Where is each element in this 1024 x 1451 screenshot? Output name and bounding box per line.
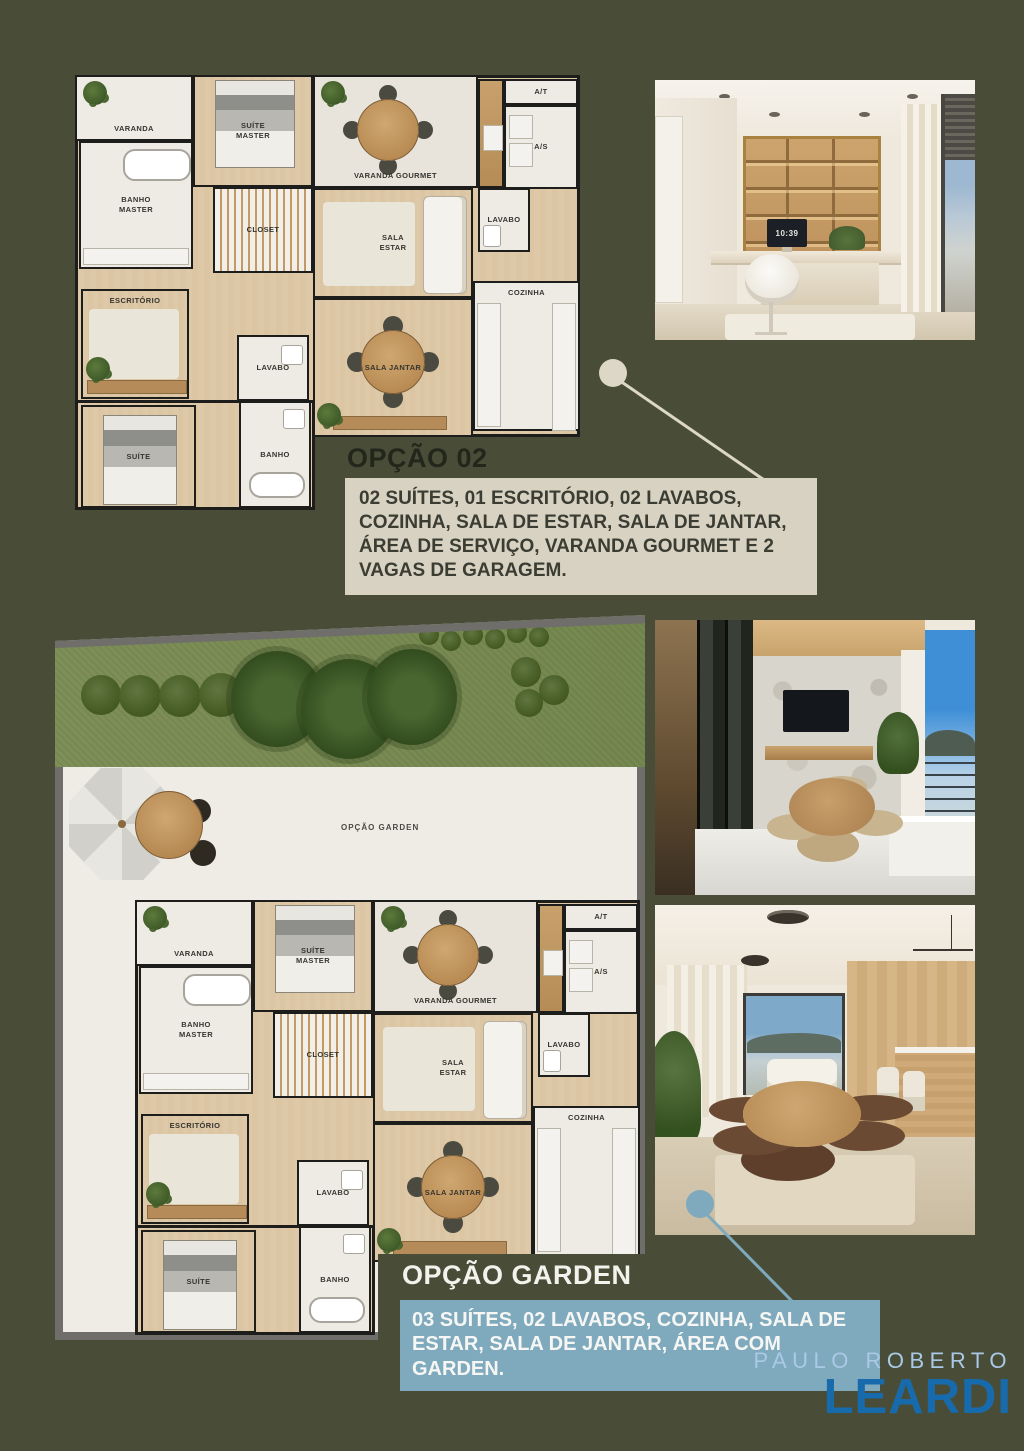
balcony-table [789, 778, 875, 836]
garden-label-sala_jantar: SALA JANTAR [425, 1188, 481, 1198]
patio-table [135, 791, 203, 859]
leardi-logo: PAULO ROBERTO LEARDI [753, 1348, 1012, 1421]
plant [143, 906, 167, 930]
garden-label-escritorio: ESCRITÓRIO [170, 1121, 221, 1131]
dining-photo [655, 905, 975, 1235]
desk-plant [829, 226, 865, 250]
kitchen-counter [612, 1128, 636, 1256]
washer [509, 115, 533, 139]
bush-icon [81, 675, 121, 715]
flower-bush-icon [441, 631, 461, 651]
plan1-label-lavabo_mid: LAVABO [257, 363, 290, 373]
plan1-label-suite_master: SUÍTE MASTER [231, 121, 275, 141]
garden-sala-jantar: SALA JANTAR [373, 1123, 533, 1262]
bathtub [123, 149, 191, 181]
dining-table [417, 924, 479, 986]
plan1-label-banho_master: BANHO MASTER [113, 195, 159, 215]
balcony-plant [877, 712, 919, 774]
bush-icon [539, 675, 569, 705]
flower-bush-icon [485, 629, 505, 649]
dryer [569, 968, 593, 992]
callout-line-option02 [620, 380, 771, 485]
garden-label-banho: BANHO [320, 1275, 350, 1285]
plan1-label-suite: SUÍTE [126, 452, 150, 462]
sideboard [333, 416, 447, 430]
sink [283, 409, 305, 429]
plan1-banho2: BANHO [239, 401, 311, 508]
dining-table [357, 99, 419, 161]
downlight-icon [907, 94, 918, 99]
bush-icon [511, 657, 541, 687]
plan1-escritorio: ESCRITÓRIO [81, 289, 189, 399]
garden-lavabo-mid: LAVABO [297, 1160, 369, 1226]
desk-monitor: 10:39 [767, 219, 807, 247]
plan1-cozinha: COZINHA [473, 281, 580, 431]
plant [86, 357, 110, 381]
garden-label-as: A/S [594, 967, 608, 977]
wall-tv [783, 690, 849, 732]
plant [146, 1182, 170, 1206]
palm-tree-icon [367, 649, 457, 745]
plant [317, 403, 341, 427]
floorplan-option-garden: OPÇÃO GARDEN VARANDABANHO MASTERSUÍTE MA… [55, 615, 645, 1340]
bush-icon [159, 675, 201, 717]
garden-label-varanda: VARANDA [174, 949, 214, 959]
sink-counter [143, 1073, 249, 1090]
brochure-page: VARANDABANHO MASTERSUÍTE MASTERCLOSETVAR… [0, 0, 1024, 1451]
clock-display: 10:39 [776, 229, 799, 238]
console-shelf [765, 746, 873, 760]
plan1-sala-jantar: SALA JANTAR [313, 298, 473, 437]
kitchen-counter [537, 1128, 561, 1252]
pendant-light-icon [913, 949, 973, 951]
garden-suite2: SUÍTE [141, 1230, 256, 1333]
plan1-label-at: A/T [534, 87, 547, 97]
garden-suite-master: SUÍTE MASTER [253, 900, 373, 1012]
garden-closet: CLOSET [273, 1012, 373, 1098]
garden-label-lavabo_mid: LAVABO [317, 1188, 350, 1198]
logo-name-main: LEARDI [753, 1374, 1012, 1421]
office-rug [725, 314, 915, 340]
garden-kitchen-strip [538, 904, 564, 1013]
plan1-label-closet: CLOSET [247, 225, 280, 235]
balcony-photo [655, 620, 975, 895]
desk [147, 1205, 247, 1219]
garden-banho2: BANHO [299, 1226, 371, 1333]
plant [377, 1228, 401, 1252]
office-curtain [901, 104, 941, 312]
sideboard [393, 1241, 507, 1255]
plan1-label-as: A/S [534, 142, 548, 152]
plan1-as: A/S [504, 105, 578, 189]
office-chair [745, 254, 799, 304]
option02-description: 02 SUÍTES, 01 ESCRITÓRIO, 02 LAVABOS, CO… [345, 478, 817, 595]
garden-label-cozinha: COZINHA [568, 1113, 605, 1123]
garden-at: A/T [564, 904, 638, 930]
kitchen-counter [477, 303, 501, 427]
desk [87, 380, 187, 394]
plan1-banho-master: BANHO MASTER [79, 141, 193, 269]
office-photo: 10:39 [655, 80, 975, 340]
mountain-view [925, 730, 975, 756]
sink [281, 345, 303, 365]
ceiling-light-icon [767, 910, 809, 924]
plan1-varanda: VARANDA [75, 75, 193, 141]
sink-counter [83, 248, 189, 265]
garden-label-banho_master: BANHO MASTER [173, 1020, 219, 1040]
downlight-icon [859, 112, 870, 117]
plan1-label-banho: BANHO [260, 450, 290, 460]
garden-label-at: A/T [594, 912, 607, 922]
plant [381, 906, 405, 930]
sofa [483, 1021, 527, 1119]
plant [321, 81, 345, 105]
garden-cozinha: COZINHA [533, 1106, 640, 1256]
office-door [655, 116, 683, 303]
window-blind [945, 94, 975, 160]
plan1-varanda-gourmet: VARANDA GOURMET [313, 75, 478, 188]
garden-label-sala_estar: SALA ESTAR [436, 1058, 470, 1078]
garden-area-label: OPÇÃO GARDEN [341, 823, 419, 832]
garden-banho-master: BANHO MASTER [139, 966, 253, 1094]
plan1-label-varanda_gourmet: VARANDA GOURMET [354, 171, 437, 181]
garden-escritorio: ESCRITÓRIO [141, 1114, 249, 1224]
callout-dot-garden [686, 1190, 714, 1218]
sofa [423, 196, 467, 294]
plan1-closet: CLOSET [213, 187, 313, 273]
plant [83, 81, 107, 105]
bathtub [249, 472, 305, 498]
plan1-label-lavabo_top: LAVABO [488, 215, 521, 225]
sink [343, 1234, 365, 1254]
dining-table [743, 1081, 861, 1147]
garden-label-closet: CLOSET [307, 1050, 340, 1060]
washer [569, 940, 593, 964]
interior-glimpse [655, 620, 697, 895]
plan1-kitchen-strip [478, 79, 504, 188]
garden-label-suite: SUÍTE [186, 1277, 210, 1287]
plan1-label-sala_jantar: SALA JANTAR [365, 363, 421, 373]
flower-bush-icon [529, 627, 549, 647]
garden-sala-estar: SALA ESTAR [373, 1013, 533, 1123]
option02-title: OPÇÃO 02 [347, 443, 488, 474]
bathtub [183, 974, 251, 1006]
downlight-icon [769, 112, 780, 117]
plan1-label-escritorio: ESCRITÓRIO [110, 296, 161, 306]
bush-icon [515, 689, 543, 717]
city-view [747, 1033, 841, 1053]
plan1-sala-estar: SALA ESTAR [313, 188, 473, 298]
sink [483, 225, 501, 247]
sink [341, 1170, 363, 1190]
garden-label-suite_master: SUÍTE MASTER [291, 946, 335, 966]
garden-varanda: VARANDA [135, 900, 253, 966]
dining-floor [655, 1137, 975, 1235]
plan1-lavabo-mid: LAVABO [237, 335, 309, 401]
garden-as: A/S [564, 930, 638, 1014]
garden-label-lavabo_top: LAVABO [548, 1040, 581, 1050]
stove [483, 125, 503, 151]
counter-stool [877, 1067, 899, 1107]
plan1-at: A/T [504, 79, 578, 105]
plan1-suite-master: SUÍTE MASTER [193, 75, 313, 187]
bathtub [309, 1297, 365, 1323]
garden-lavabo-top: LAVABO [538, 1013, 590, 1077]
sink [543, 1050, 561, 1072]
garden-varanda-gourmet: VARANDA GOURMET [373, 900, 538, 1013]
plan1-label-cozinha: COZINHA [508, 288, 545, 298]
option-garden-title: OPÇÃO GARDEN [402, 1260, 632, 1291]
plan1-label-varanda: VARANDA [114, 124, 154, 134]
counter-stool [903, 1071, 925, 1111]
plan1-suite2: SUÍTE [81, 405, 196, 508]
dryer [509, 143, 533, 167]
balustrade [889, 816, 975, 876]
kitchen-counter [552, 303, 576, 431]
garden-label-varanda_gourmet: VARANDA GOURMET [414, 996, 497, 1006]
stove [543, 950, 563, 976]
plan1-lavabo-top: LAVABO [478, 188, 530, 252]
plan1-label-sala_estar: SALA ESTAR [376, 233, 410, 253]
bush-icon [119, 675, 161, 717]
floorplan-option02: VARANDABANHO MASTERSUÍTE MASTERCLOSETVAR… [75, 75, 580, 510]
